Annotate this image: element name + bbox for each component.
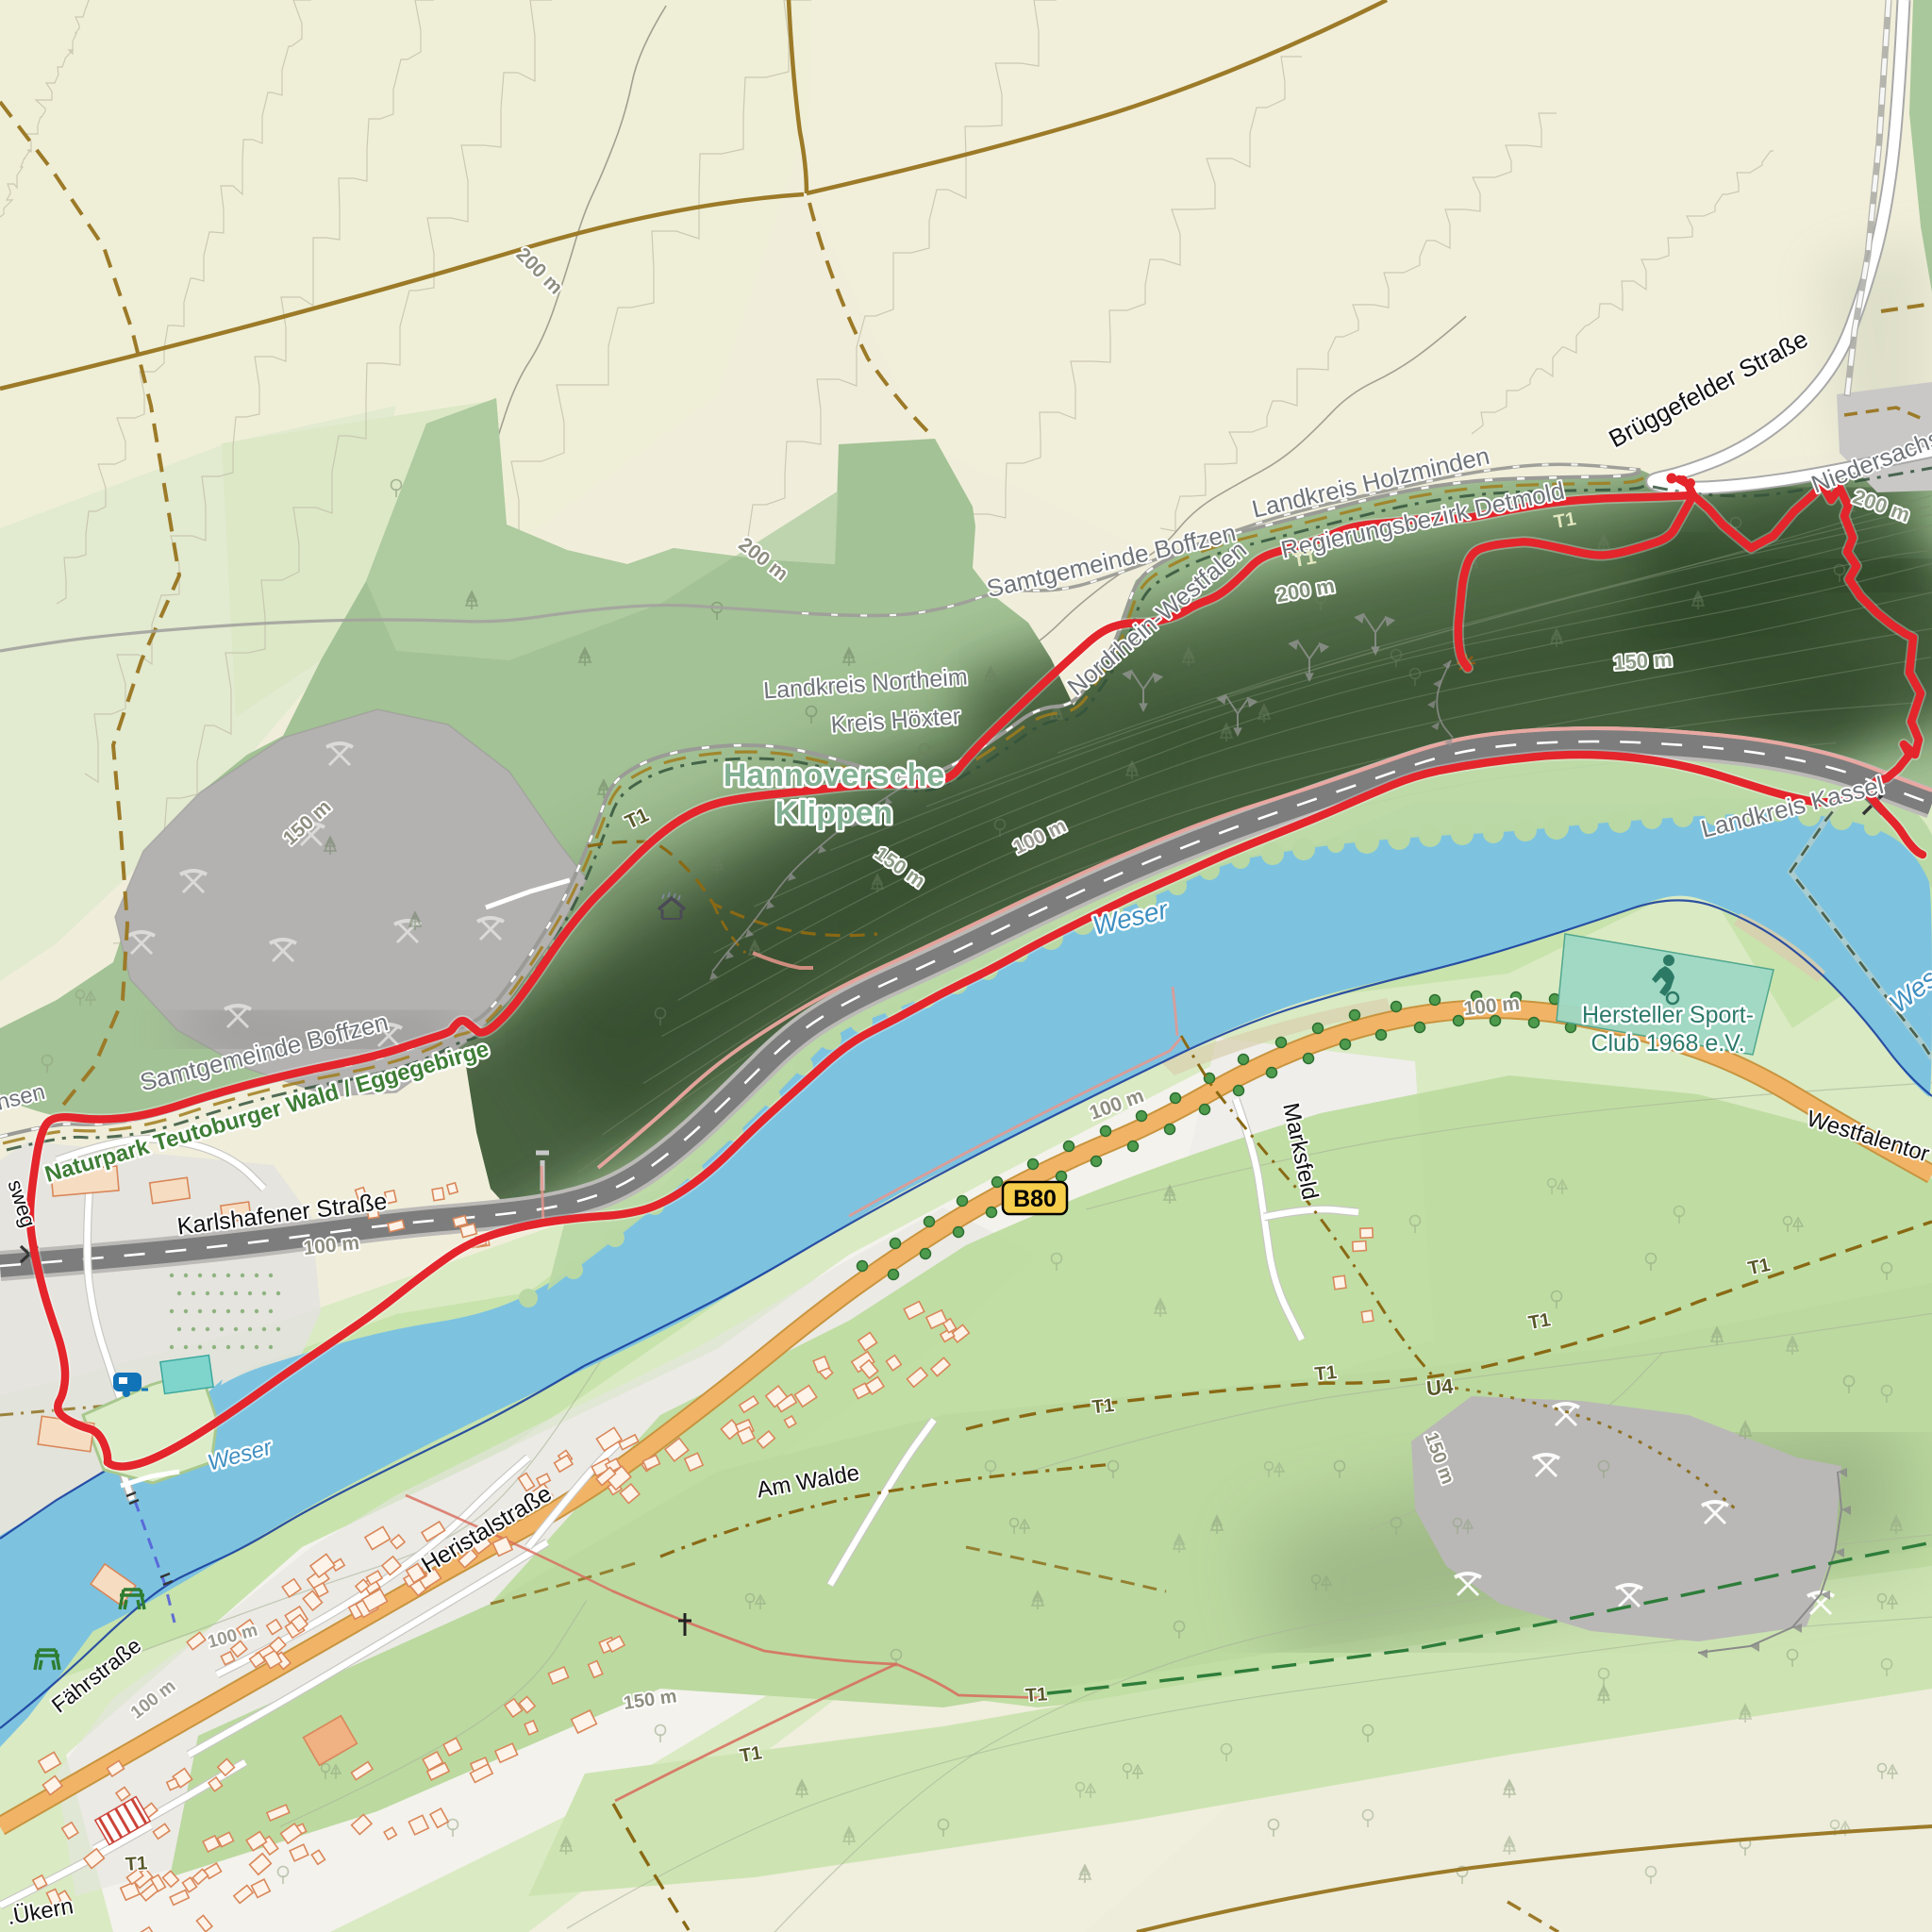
svg-text:T1: T1 bbox=[1553, 508, 1578, 533]
svg-text:150 m: 150 m bbox=[1612, 647, 1673, 675]
svg-text:T1: T1 bbox=[125, 1853, 148, 1875]
svg-text:T1: T1 bbox=[1024, 1684, 1048, 1707]
svg-text:T1: T1 bbox=[1527, 1309, 1553, 1334]
svg-text:U4: U4 bbox=[1425, 1374, 1455, 1401]
svg-text:Klippen: Klippen bbox=[775, 795, 893, 831]
svg-text:Hannoversche: Hannoversche bbox=[724, 758, 944, 793]
svg-text:Club 1968 e.V.: Club 1968 e.V. bbox=[1591, 1030, 1744, 1057]
svg-text:T1: T1 bbox=[1091, 1395, 1116, 1418]
svg-text:B80: B80 bbox=[1013, 1186, 1057, 1212]
svg-text:T1: T1 bbox=[739, 1742, 764, 1767]
svg-text:T1: T1 bbox=[1291, 546, 1318, 572]
svg-text:T1: T1 bbox=[1314, 1362, 1339, 1385]
svg-text:Hersteller Sport-: Hersteller Sport- bbox=[1582, 1002, 1754, 1028]
